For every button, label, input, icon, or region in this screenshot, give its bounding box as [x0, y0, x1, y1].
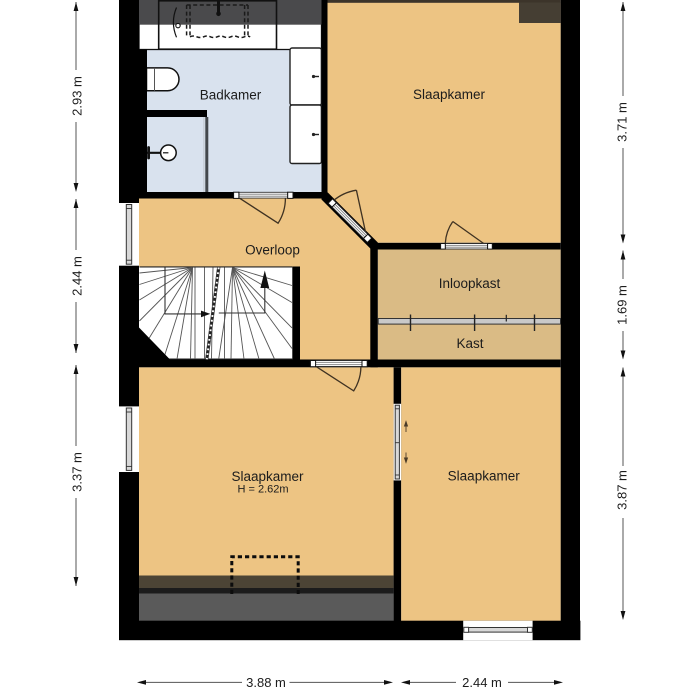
svg-text:1.69 m: 1.69 m	[615, 285, 630, 325]
svg-text:3.88 m: 3.88 m	[246, 675, 286, 690]
svg-text:Slaapkamer: Slaapkamer	[231, 469, 304, 484]
svg-text:3.87 m: 3.87 m	[615, 470, 630, 510]
svg-text:2.44 m: 2.44 m	[70, 256, 85, 296]
svg-text:Inloopkast: Inloopkast	[439, 276, 501, 291]
svg-text:3.71 m: 3.71 m	[615, 102, 630, 142]
svg-text:Slaapkamer: Slaapkamer	[448, 469, 521, 484]
svg-text:2.44 m: 2.44 m	[462, 675, 502, 690]
svg-text:3.37 m: 3.37 m	[70, 452, 85, 492]
svg-text:Badkamer: Badkamer	[200, 88, 262, 103]
svg-text:2.93 m: 2.93 m	[70, 76, 85, 116]
svg-text:H = 2.62m: H = 2.62m	[237, 484, 288, 496]
svg-text:Overloop: Overloop	[245, 243, 300, 258]
svg-text:Slaapkamer: Slaapkamer	[413, 87, 486, 102]
svg-text:Kast: Kast	[456, 336, 483, 351]
